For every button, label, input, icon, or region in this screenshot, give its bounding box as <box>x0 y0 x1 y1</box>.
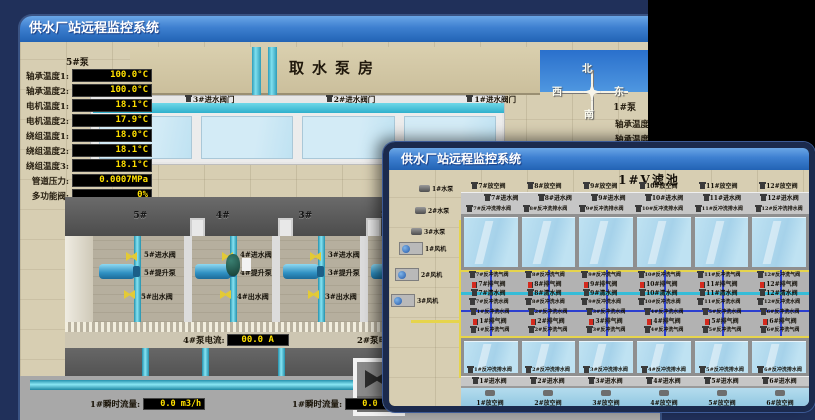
valve-icon <box>529 310 534 315</box>
valve-label: 9#反冲洗气阀 <box>588 273 621 278</box>
outlet-valve-icon[interactable] <box>308 290 319 299</box>
vent-valve[interactable]: 3#放空阀 <box>592 398 619 407</box>
inlet-valve[interactable]: 3#进水阀 <box>589 379 622 385</box>
backwash-drain-valve[interactable]: 1#反冲洗排水阀 <box>468 368 512 373</box>
exhaust-valve-row-top: 7#排气阀8#排气阀9#排气阀10#排气阀11#排气阀12#排气阀 <box>461 280 809 289</box>
valve-label: 5#进水阀 <box>711 379 738 385</box>
reading-value: 18.0°C <box>72 129 152 142</box>
front-window-title: 供水厂站远程监控系统 <box>401 152 521 166</box>
pump-bay: 3#进水阀 3#提升泵 3#出水阀 <box>272 236 360 322</box>
back-window-titlebar[interactable]: 供水厂站远程监控系统 <box>20 16 660 42</box>
drain-channel: 1#放空阀2#放空阀3#放空阀4#放空阀5#放空阀6#放空阀 <box>461 386 809 408</box>
sluice-pump-icon <box>717 390 727 396</box>
outlet-valve-icon[interactable] <box>124 290 135 299</box>
reading-label: 电机温度1: <box>22 100 72 112</box>
inlet-valve-icon[interactable] <box>126 252 137 261</box>
valve-label: 10#清水阀 <box>646 291 677 297</box>
valve-icon <box>584 291 589 296</box>
valve-label: 11#反冲洗水阀 <box>704 300 740 305</box>
valve-icon <box>758 273 763 278</box>
backwash-water-valve[interactable]: 5#反冲洗水阀 <box>703 310 742 315</box>
valve-label: 3#反冲洗气阀 <box>593 328 626 333</box>
exhaust-valve[interactable]: 3#排气阀 <box>589 319 622 325</box>
valve-icon <box>636 207 641 212</box>
valve-icon <box>705 379 710 384</box>
valve-label: 8#进水阀 <box>545 196 572 202</box>
inlet-valve[interactable]: 4#进水阀 <box>647 379 680 385</box>
inlet-valve-icon[interactable] <box>310 252 321 261</box>
pump-5-tag: 5#泵 <box>66 55 89 68</box>
blower-icon <box>395 268 419 281</box>
filter-cell[interactable] <box>464 217 518 267</box>
intake-cell[interactable] <box>201 116 294 159</box>
inlet-valve[interactable]: 8#进水阀 <box>539 196 572 202</box>
reading-row: 绕组温度2: 18.1°C <box>22 143 158 158</box>
valve-label: 10#反冲洗排水阀 <box>642 207 683 212</box>
backwash-air-valve[interactable]: 2#反冲洗气阀 <box>529 328 568 333</box>
valve-icon <box>582 273 587 278</box>
reading-row: 电机温度2: 17.9°C <box>22 113 158 128</box>
valve-label: 4#反冲洗水阀 <box>651 310 684 315</box>
inlet-valve[interactable]: 6#进水阀 <box>763 379 796 385</box>
reading-row: 绕组温度3: 18.1°C <box>22 158 158 173</box>
valve-icon <box>592 196 597 201</box>
valve-label: 1#排气阀 <box>479 319 506 325</box>
valve-icon <box>529 328 534 333</box>
backwash-drain-valve[interactable]: 12#反冲洗排水阀 <box>756 207 803 212</box>
filter-cell[interactable] <box>579 217 633 267</box>
intake-cell[interactable] <box>302 116 395 159</box>
valve-icon <box>470 273 475 278</box>
backwash-drain-valve[interactable]: 7#反冲洗排水阀 <box>467 207 511 212</box>
valve-label: 3#排气阀 <box>595 319 622 325</box>
valve-label: 12#放空阀 <box>766 184 797 190</box>
flow-label: 1#瞬时流量: <box>90 398 140 410</box>
alarm-valve-icon <box>473 319 478 325</box>
intake-gate-valve[interactable]: 1#进水阀门 <box>467 94 516 105</box>
valve-label: 12#排气阀 <box>766 282 797 288</box>
backwash-air-valve[interactable]: 7#反冲洗气阀 <box>470 273 509 278</box>
pump-room-left-wall <box>65 236 93 322</box>
backwash-drain-valve[interactable]: 6#反冲洗排水阀 <box>758 368 802 373</box>
valve-icon <box>758 300 763 305</box>
water-pump-label: 2#水泵 <box>428 206 449 215</box>
valve-icon <box>467 207 472 212</box>
exhaust-valve[interactable]: 12#排气阀 <box>760 282 797 288</box>
alarm-valve-icon <box>700 282 705 288</box>
valve-label: 7#反冲洗气阀 <box>476 273 509 278</box>
vent-valve[interactable]: 8#放空阀 <box>528 184 561 190</box>
valve-icon <box>698 300 703 305</box>
clean-water-valve[interactable]: 12#清水阀 <box>760 291 797 297</box>
valve-icon <box>761 328 766 333</box>
vent-valve[interactable]: 4#放空阀 <box>650 398 677 407</box>
reading-row: 绕组温度1: 18.0°C <box>22 128 158 143</box>
intake-gate-valve[interactable]: 2#进水阀门 <box>327 94 376 105</box>
valve-icon <box>700 368 705 373</box>
backwash-water-valve[interactable]: 10#反冲洗水阀 <box>639 300 681 305</box>
exhaust-valve[interactable]: 6#排气阀 <box>763 319 796 325</box>
valve-icon <box>528 291 533 296</box>
exhaust-valve[interactable]: 7#排气阀 <box>472 282 505 288</box>
valve-icon <box>473 379 478 384</box>
clean-water-valve[interactable]: 10#清水阀 <box>640 291 677 297</box>
valve-label: 12#反冲洗排水阀 <box>762 207 803 212</box>
filter-window[interactable]: 供水厂站远程监控系统 1#V滤池 1#水泵 2#水泵 3#水泵 1#风机 2#风… <box>383 142 815 412</box>
backwash-air-valve[interactable]: 11#反冲洗气阀 <box>698 273 740 278</box>
vent-valve[interactable]: 11#放空阀 <box>700 184 737 190</box>
valve-label: 3#反冲洗排水阀 <box>590 368 628 373</box>
clean-water-valve[interactable]: 11#清水阀 <box>700 291 737 297</box>
valve-icon <box>761 310 766 315</box>
valve-label: 1#反冲洗水阀 <box>477 310 510 315</box>
bottom-drain-valve-row: 1#反冲洗排水阀2#反冲洗排水阀3#反冲洗排水阀4#反冲洗排水阀5#反冲洗排水阀… <box>461 366 809 375</box>
valve-icon <box>531 379 536 384</box>
valve-label: 11#排气阀 <box>706 282 737 288</box>
clean-water-valve[interactable]: 9#清水阀 <box>584 291 617 297</box>
valve-icon <box>587 328 592 333</box>
equipment-column: 1#水泵 2#水泵 3#水泵 1#风机 2#风机 3#风机 <box>389 180 467 330</box>
front-window-titlebar[interactable]: 供水厂站远程监控系统 <box>389 148 809 170</box>
exhaust-valve[interactable]: 4#排气阀 <box>647 319 680 325</box>
alarm-valve-icon <box>640 282 645 288</box>
backwash-drain-valve[interactable]: 4#反冲洗排水阀 <box>642 368 686 373</box>
valve-icon <box>468 368 473 373</box>
water-pump[interactable]: 3#水泵 <box>411 227 445 236</box>
backwash-drain-valve[interactable]: 2#反冲洗排水阀 <box>526 368 570 373</box>
valve-label: 6#反冲洗排水阀 <box>764 368 802 373</box>
inlet-valve[interactable]: 5#进水阀 <box>705 379 738 385</box>
valve-label: 6#反冲洗气阀 <box>767 328 800 333</box>
backwash-drain-valve[interactable]: 9#反冲洗排水阀 <box>580 207 624 212</box>
backwash-drain-valve[interactable]: 11#反冲洗排水阀 <box>696 207 743 212</box>
filter-cell[interactable] <box>695 217 749 267</box>
inlet-valve[interactable]: 9#进水阀 <box>592 196 625 202</box>
valve-icon <box>704 196 709 201</box>
valve-label: 1#反冲洗气阀 <box>477 328 510 333</box>
valve-icon <box>639 273 644 278</box>
riser-pipe <box>252 47 261 95</box>
valve-label: 11#进水阀 <box>710 196 741 202</box>
reading-label: 电机温度2: <box>22 115 72 127</box>
valve-label: 8#反冲洗气阀 <box>532 273 565 278</box>
pump-1-panel: 1#泵 轴承温度1:轴承温度2: <box>580 100 658 148</box>
valve-icon <box>472 184 477 189</box>
valve-icon <box>760 291 765 296</box>
valve-label: 9#进水阀 <box>598 196 625 202</box>
valve-icon <box>528 184 533 189</box>
flow-label: 1#瞬时流量: <box>292 398 342 410</box>
intake-valve-label: 2#进水阀门 <box>334 94 376 105</box>
valve-label: 5#反冲洗气阀 <box>709 328 742 333</box>
outlet-pipe <box>278 348 285 376</box>
reading-value: 0.0007MPa <box>72 174 152 187</box>
desktop-background: 供水厂站远程监控系统 取水泵房 3#进水阀门2#进水阀门1#进水阀门 <box>0 0 815 420</box>
backwash-water-valve[interactable]: 7#反冲洗水阀 <box>470 300 509 305</box>
exhaust-valve[interactable]: 2#排气阀 <box>531 319 564 325</box>
intake-gate-valve[interactable]: 3#进水阀门 <box>186 94 235 105</box>
alarm-valve-icon <box>528 282 533 288</box>
backwash-water-valve[interactable]: 6#反冲洗水阀 <box>761 310 800 315</box>
current-value: 00.0 A <box>227 334 289 346</box>
inlet-valve-label: 5#进水阀 <box>144 250 176 260</box>
valve-icon <box>582 300 587 305</box>
inlet-valve[interactable]: 1#进水阀 <box>473 379 506 385</box>
vent-valve[interactable]: 7#放空阀 <box>472 184 505 190</box>
filter-cells-top <box>461 214 809 270</box>
inlet-valve[interactable]: 7#进水阀 <box>485 196 518 202</box>
backwash-water-valve[interactable]: 2#反冲洗水阀 <box>529 310 568 315</box>
vent-valve[interactable]: 5#放空阀 <box>708 398 735 407</box>
backwash-water-valve[interactable]: 4#反冲洗水阀 <box>645 310 684 315</box>
pump-bay: 5#进水阀 5#提升泵 5#出水阀 <box>96 236 184 322</box>
backwash-air-valve[interactable]: 12#反冲洗气阀 <box>758 273 800 278</box>
lift-pump-label: 3#提升泵 <box>328 268 360 278</box>
valve-icon <box>526 300 531 305</box>
valve-label: 10#排气阀 <box>646 282 677 288</box>
valve-icon <box>645 310 650 315</box>
valve-label: 6#排气阀 <box>769 319 796 325</box>
reading-label: 轴承温度1: <box>22 70 72 82</box>
filter-cell[interactable] <box>752 217 806 267</box>
backwash-water-valve[interactable]: 9#反冲洗水阀 <box>582 300 621 305</box>
intake-valve-label: 3#进水阀门 <box>193 94 235 105</box>
valve-label: 12#反冲洗气阀 <box>764 273 800 278</box>
vent-valve[interactable]: 9#放空阀 <box>584 184 617 190</box>
backwash-drain-valve[interactable]: 3#反冲洗排水阀 <box>584 368 628 373</box>
outlet-valve-label: 4#出水阀 <box>237 292 269 302</box>
valve-label: 5#反冲洗水阀 <box>709 310 742 315</box>
back-window-title: 供水厂站远程监控系统 <box>29 21 159 36</box>
backwash-air-valve[interactable]: 9#反冲洗气阀 <box>582 273 621 278</box>
valve-label: 5#排气阀 <box>711 319 738 325</box>
valve-label: 2#进水阀 <box>537 379 564 385</box>
lift-pump-label: 5#提升泵 <box>144 268 176 278</box>
valve-label: 11#放空阀 <box>706 184 737 190</box>
valve-icon <box>698 273 703 278</box>
backwash-water-valve[interactable]: 12#反冲洗水阀 <box>758 300 800 305</box>
lift-pump[interactable] <box>99 264 135 279</box>
valve-icon <box>327 97 332 102</box>
clean-water-valve[interactable]: 7#清水阀 <box>472 291 505 297</box>
vent-valve[interactable]: 1#放空阀 <box>476 398 503 407</box>
valve-label: 3#反冲洗水阀 <box>593 310 626 315</box>
valve-icon <box>589 379 594 384</box>
clean-water-valve[interactable]: 8#清水阀 <box>528 291 561 297</box>
outlet-pipe <box>142 348 149 376</box>
valve-label: 12#进水阀 <box>767 196 798 202</box>
alarm-valve-icon <box>705 319 710 325</box>
valve-label: 8#放空阀 <box>534 184 561 190</box>
vent-valve[interactable]: 12#放空阀 <box>760 184 797 190</box>
valve-icon <box>647 379 652 384</box>
bay-number: 3# <box>298 211 312 221</box>
blower-label: 3#风机 <box>417 296 438 305</box>
valve-icon <box>640 291 645 296</box>
valve-label: 4#进水阀 <box>653 379 680 385</box>
reading-value: 18.1°C <box>72 159 152 172</box>
filter-grid: 7#放空阀8#放空阀9#放空阀10#放空阀11#放空阀12#放空阀 7#进水阀8… <box>461 180 809 408</box>
lift-pump[interactable] <box>283 264 319 279</box>
bay-pipe <box>230 236 237 322</box>
outlet-valve-label: 5#出水阀 <box>141 292 173 302</box>
alarm-valve-icon <box>531 319 536 325</box>
bay-number: 5# <box>133 211 147 221</box>
air-valve-row-bottom: 1#反冲洗气阀2#反冲洗气阀3#反冲洗气阀4#反冲洗气阀5#反冲洗气阀6#反冲洗… <box>461 326 809 335</box>
exhaust-valve[interactable]: 1#排气阀 <box>473 319 506 325</box>
valve-icon <box>640 184 645 189</box>
filter-scene: 1#V滤池 1#水泵 2#水泵 3#水泵 1#风机 2#风机 3#风机 7#放空… <box>389 170 809 408</box>
valve-label: 8#清水阀 <box>534 291 561 297</box>
alarm-valve-icon <box>589 319 594 325</box>
valve-label: 10#进水阀 <box>652 196 683 202</box>
reading-value: 100.0°C <box>72 69 152 82</box>
pump-icon <box>411 228 422 235</box>
readings-panel: 轴承温度1: 100.0°C 轴承温度2: 100.0°C 电机温度1: 18.… <box>22 68 158 203</box>
valve-icon <box>645 328 650 333</box>
backwash-air-valve[interactable]: 1#反冲洗气阀 <box>471 328 510 333</box>
backwash-air-valve[interactable]: 4#反冲洗气阀 <box>645 328 684 333</box>
pump-1-tag: 1#泵 <box>580 100 658 115</box>
valve-label: 7#清水阀 <box>478 291 505 297</box>
valve-icon <box>470 300 475 305</box>
backwash-drain-valve[interactable]: 5#反冲洗排水阀 <box>700 368 744 373</box>
backwash-water-valve[interactable]: 11#反冲洗水阀 <box>698 300 740 305</box>
blower[interactable]: 1#风机 <box>399 242 446 255</box>
valve-label: 2#反冲洗排水阀 <box>532 368 570 373</box>
filter-cell[interactable] <box>637 217 691 267</box>
compass-star-icon <box>583 83 601 101</box>
valve-label: 9#放空阀 <box>590 184 617 190</box>
valve-icon <box>756 207 761 212</box>
backwash-water-valve[interactable]: 3#反冲洗水阀 <box>587 310 626 315</box>
backwash-drain-valve[interactable]: 8#反冲洗排水阀 <box>524 207 568 212</box>
blower[interactable]: 2#风机 <box>395 268 442 281</box>
building-sign: 取水泵房 <box>130 57 540 78</box>
inlet-valve[interactable]: 11#进水阀 <box>704 196 741 202</box>
valve-label: 6#反冲洗水阀 <box>767 310 800 315</box>
exhaust-valve[interactable]: 10#排气阀 <box>640 282 677 288</box>
valve-label: 4#排气阀 <box>653 319 680 325</box>
clean-valve-row-top: 7#清水阀8#清水阀9#清水阀10#清水阀11#清水阀12#清水阀 <box>461 289 809 298</box>
sluice-pump-icon <box>543 390 553 396</box>
valve-label: 4#反冲洗气阀 <box>651 328 684 333</box>
reading-label: 轴承温度1: <box>580 118 658 133</box>
reading-label: 轴承温度2: <box>22 85 72 97</box>
vent-valve[interactable]: 2#放空阀 <box>534 398 561 407</box>
exhaust-valve[interactable]: 9#排气阀 <box>584 282 617 288</box>
backwash-air-valve[interactable]: 6#反冲洗气阀 <box>761 328 800 333</box>
vent-valve[interactable]: 6#放空阀 <box>766 398 793 407</box>
valve-label: 11#反冲洗排水阀 <box>702 207 743 212</box>
wall-bracket <box>190 218 205 236</box>
exhaust-valve[interactable]: 5#排气阀 <box>705 319 738 325</box>
valve-icon <box>761 196 766 201</box>
filter-cell[interactable] <box>522 217 576 267</box>
reading-row: 轴承温度1: 100.0°C <box>22 68 158 83</box>
alarm-valve-icon <box>760 282 765 288</box>
air-valve-row-top: 7#反冲洗气阀8#反冲洗气阀9#反冲洗气阀10#反冲洗气阀11#反冲洗气阀12#… <box>461 271 809 280</box>
blower[interactable]: 3#风机 <box>391 294 438 307</box>
valve-label: 7#进水阀 <box>491 196 518 202</box>
valve-icon <box>526 368 531 373</box>
valve-icon <box>646 196 651 201</box>
compass-west: 西 <box>552 83 562 98</box>
reading-label: 管道压力: <box>22 175 72 187</box>
backwash-water-valve[interactable]: 1#反冲洗水阀 <box>471 310 510 315</box>
backwash-air-valve[interactable]: 3#反冲洗气阀 <box>587 328 626 333</box>
inlet-valve[interactable]: 2#进水阀 <box>531 379 564 385</box>
valve-icon <box>524 207 529 212</box>
backwash-air-valve[interactable]: 8#反冲洗气阀 <box>526 273 565 278</box>
valve-label: 1#进水阀 <box>479 379 506 385</box>
valve-label: 11#清水阀 <box>706 291 737 297</box>
exhaust-valve[interactable]: 8#排气阀 <box>528 282 561 288</box>
valve-icon <box>584 184 589 189</box>
valve-label: 7#反冲洗排水阀 <box>473 207 511 212</box>
flow-value: 0.0 m3/h <box>143 398 205 410</box>
valve-label: 2#排气阀 <box>537 319 564 325</box>
valve-label: 7#放空阀 <box>478 184 505 190</box>
valve-label: 8#反冲洗排水阀 <box>530 207 568 212</box>
alarm-valve-icon <box>472 282 477 288</box>
valve-icon <box>471 310 476 315</box>
sluice-pump-icon <box>485 390 495 396</box>
alarm-valve-icon <box>647 319 652 325</box>
valve-icon <box>580 207 585 212</box>
sluice-pump-icon <box>775 390 785 396</box>
valve-label: 2#反冲洗气阀 <box>535 328 568 333</box>
outlet-valve-label: 3#出水阀 <box>325 292 357 302</box>
outlet-valve-icon[interactable] <box>220 290 231 299</box>
top-vent-valve-row: 7#放空阀8#放空阀9#放空阀10#放空阀11#放空阀12#放空阀 <box>461 182 809 191</box>
alarm-valve-icon <box>584 282 589 288</box>
compass-north: 北 <box>582 60 592 75</box>
inlet-valve[interactable]: 12#进水阀 <box>761 196 798 202</box>
exhaust-valve[interactable]: 11#排气阀 <box>700 282 737 288</box>
valve-icon <box>539 196 544 201</box>
water-pump-label: 3#水泵 <box>424 227 445 236</box>
valve-label: 8#反冲洗水阀 <box>532 300 565 305</box>
flow-readout: 1#瞬时流量: 0.0 m3/h <box>90 398 205 410</box>
valve-label: 11#反冲洗气阀 <box>704 273 740 278</box>
valve-label: 3#进水阀 <box>595 379 622 385</box>
valve-icon <box>703 310 708 315</box>
valve-icon <box>760 184 765 189</box>
backwash-air-valve[interactable]: 5#反冲洗气阀 <box>703 328 742 333</box>
water-pump[interactable]: 2#水泵 <box>415 206 449 215</box>
backwash-drain-valve[interactable]: 10#反冲洗排水阀 <box>636 207 683 212</box>
bay-pipe <box>318 236 325 322</box>
valve-label: 4#反冲洗排水阀 <box>648 368 686 373</box>
top-drain-valve-row: 7#反冲洗排水阀8#反冲洗排水阀9#反冲洗排水阀10#反冲洗排水阀11#反冲洗排… <box>461 205 809 214</box>
pump-current-readout: 4#泵电流: 00.0 A <box>183 334 289 346</box>
bay-pipe <box>134 236 141 322</box>
valve-label: 9#反冲洗水阀 <box>588 300 621 305</box>
valve-icon <box>703 328 708 333</box>
backwash-water-valve[interactable]: 8#反冲洗水阀 <box>526 300 565 305</box>
water-pump[interactable]: 1#水泵 <box>419 184 453 193</box>
backwash-air-valve[interactable]: 10#反冲洗气阀 <box>639 273 681 278</box>
wall-bracket <box>366 218 381 236</box>
reading-row: 轴承温度2: 100.0°C <box>22 83 158 98</box>
inlet-valve[interactable]: 10#进水阀 <box>646 196 683 202</box>
vent-valve[interactable]: 10#放空阀 <box>640 184 677 190</box>
outlet-pipe <box>202 348 209 376</box>
valve-icon <box>700 291 705 296</box>
sluice-pump-icon <box>601 390 611 396</box>
valve-icon <box>526 273 531 278</box>
